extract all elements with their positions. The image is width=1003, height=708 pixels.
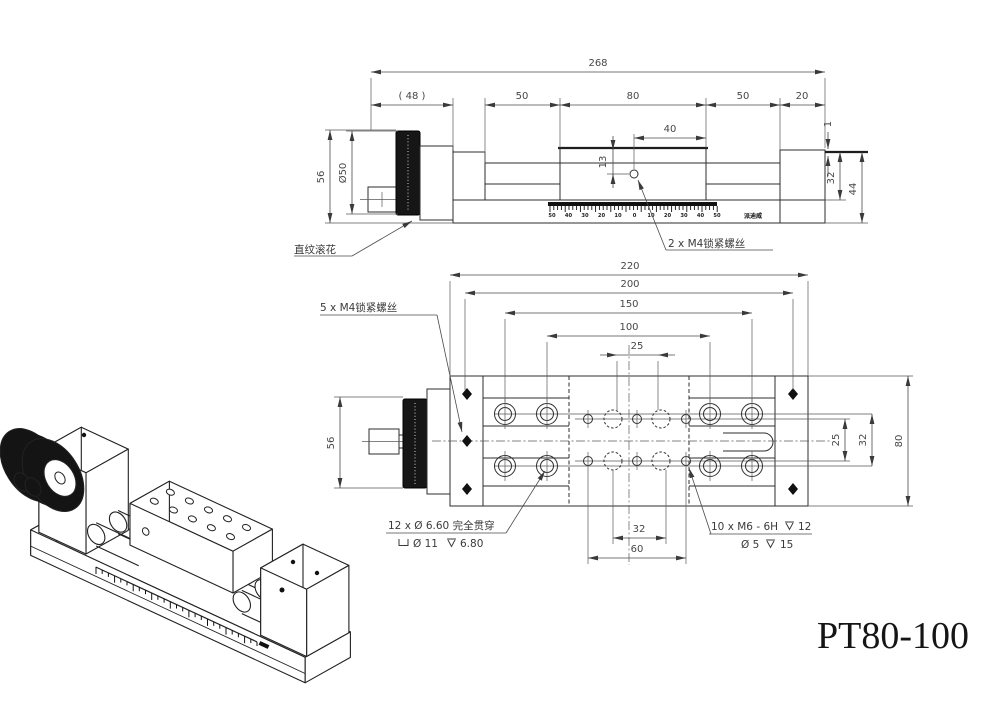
- rail-body: [485, 163, 780, 200]
- dim-dia50: Ø50: [337, 163, 349, 184]
- dim-150: 150: [619, 299, 638, 310]
- drawing-sheet: 50 40 30 20 10 0 10 20 30 40 50 派迪威 268 …: [0, 0, 1003, 708]
- iso-screw-dot: [82, 433, 86, 437]
- scale-numbers: 50 40 30 20 10 0 10 20 30 40 50: [548, 213, 721, 219]
- dim-48: ( 48 ): [399, 91, 426, 102]
- brand-mark: 派迪威: [744, 212, 762, 220]
- lockscrew-label: 2 x M4锁紧螺丝: [668, 237, 745, 250]
- dim-268: 268: [588, 58, 607, 69]
- scale-number: 50: [713, 213, 721, 219]
- dim-32: 32: [826, 172, 837, 185]
- vernier-scale: 50 40 30 20 10 0 10 20 30 40 50 派迪威: [548, 202, 762, 220]
- plan-knurled-knob: [403, 399, 427, 488]
- dim-200: 200: [620, 279, 639, 290]
- dim-32-right: 32: [858, 434, 869, 447]
- dim-60: 60: [631, 544, 644, 555]
- counterbore-dia: Ø 11: [413, 538, 438, 550]
- depth-symbol: [447, 539, 456, 547]
- dim-44: 44: [848, 183, 859, 196]
- isometric-view: [0, 417, 350, 683]
- plan-view: 220 200 150 100 25 56 32 60 25 32 80: [320, 261, 913, 565]
- scale-number: 10: [614, 213, 622, 219]
- tap-dia: Ø 5: [741, 539, 759, 551]
- dim-1: 1: [823, 121, 834, 127]
- iso-screw-dot: [280, 588, 285, 593]
- slot-feature: [723, 433, 773, 451]
- dim-56: 56: [316, 171, 327, 184]
- scale-number: 20: [664, 213, 672, 219]
- technical-drawing: 50 40 30 20 10 0 10 20 30 40 50 派迪威 268 …: [0, 0, 1003, 708]
- dim-50a: 50: [516, 91, 529, 102]
- plan-knob-bracket: [427, 389, 450, 494]
- scale-number: 20: [598, 213, 606, 219]
- dim-25-top: 25: [631, 341, 644, 352]
- side-elevation-view: 50 40 30 20 10 0 10 20 30 40 50 派迪威 268 …: [294, 58, 868, 256]
- dim-80: 80: [627, 91, 640, 102]
- moving-platform: [560, 148, 706, 200]
- dim-32-bottom: 32: [633, 524, 646, 535]
- counterbore-holes: [495, 399, 763, 481]
- iso-screw-dot: [291, 560, 295, 564]
- counterbore-depth: 6.80: [460, 538, 483, 550]
- scale-number: 30: [581, 213, 589, 219]
- dim-13: 13: [598, 156, 609, 169]
- dim-220: 220: [620, 261, 639, 272]
- counterbore-symbol: [399, 539, 408, 546]
- knurl-label: 直纹滚花: [294, 243, 336, 256]
- tap-depth: 12: [798, 521, 811, 533]
- scale-number: 30: [680, 213, 688, 219]
- tap-depth2: 15: [780, 539, 793, 551]
- dim-56-plan: 56: [326, 437, 337, 450]
- lock-screw-hole: [630, 170, 638, 178]
- scale-number: 40: [697, 213, 705, 219]
- scale-number: 40: [565, 213, 573, 219]
- knob-bracket: [420, 146, 453, 220]
- lockscrew5-label: 5 x M4锁紧螺丝: [320, 301, 397, 314]
- dim-25-right: 25: [831, 434, 842, 447]
- iso-screw-dot: [315, 571, 319, 575]
- end-cap: [780, 150, 825, 223]
- dim-50b: 50: [737, 91, 750, 102]
- scale-number: 0: [633, 213, 637, 219]
- depth-symbol: [766, 540, 775, 548]
- depth-symbol: [785, 522, 794, 530]
- model-title: PT80-100: [817, 615, 969, 657]
- scale-number: 50: [548, 213, 556, 219]
- dim-40: 40: [664, 124, 677, 135]
- tap-label-line1: 10 x M6 - 6H: [711, 521, 778, 533]
- dim-80: 80: [894, 435, 905, 448]
- dim-20: 20: [796, 91, 809, 102]
- counterbore-label-line1: 12 x Ø 6.60 完全贯穿: [388, 519, 495, 532]
- dim-100: 100: [619, 322, 638, 333]
